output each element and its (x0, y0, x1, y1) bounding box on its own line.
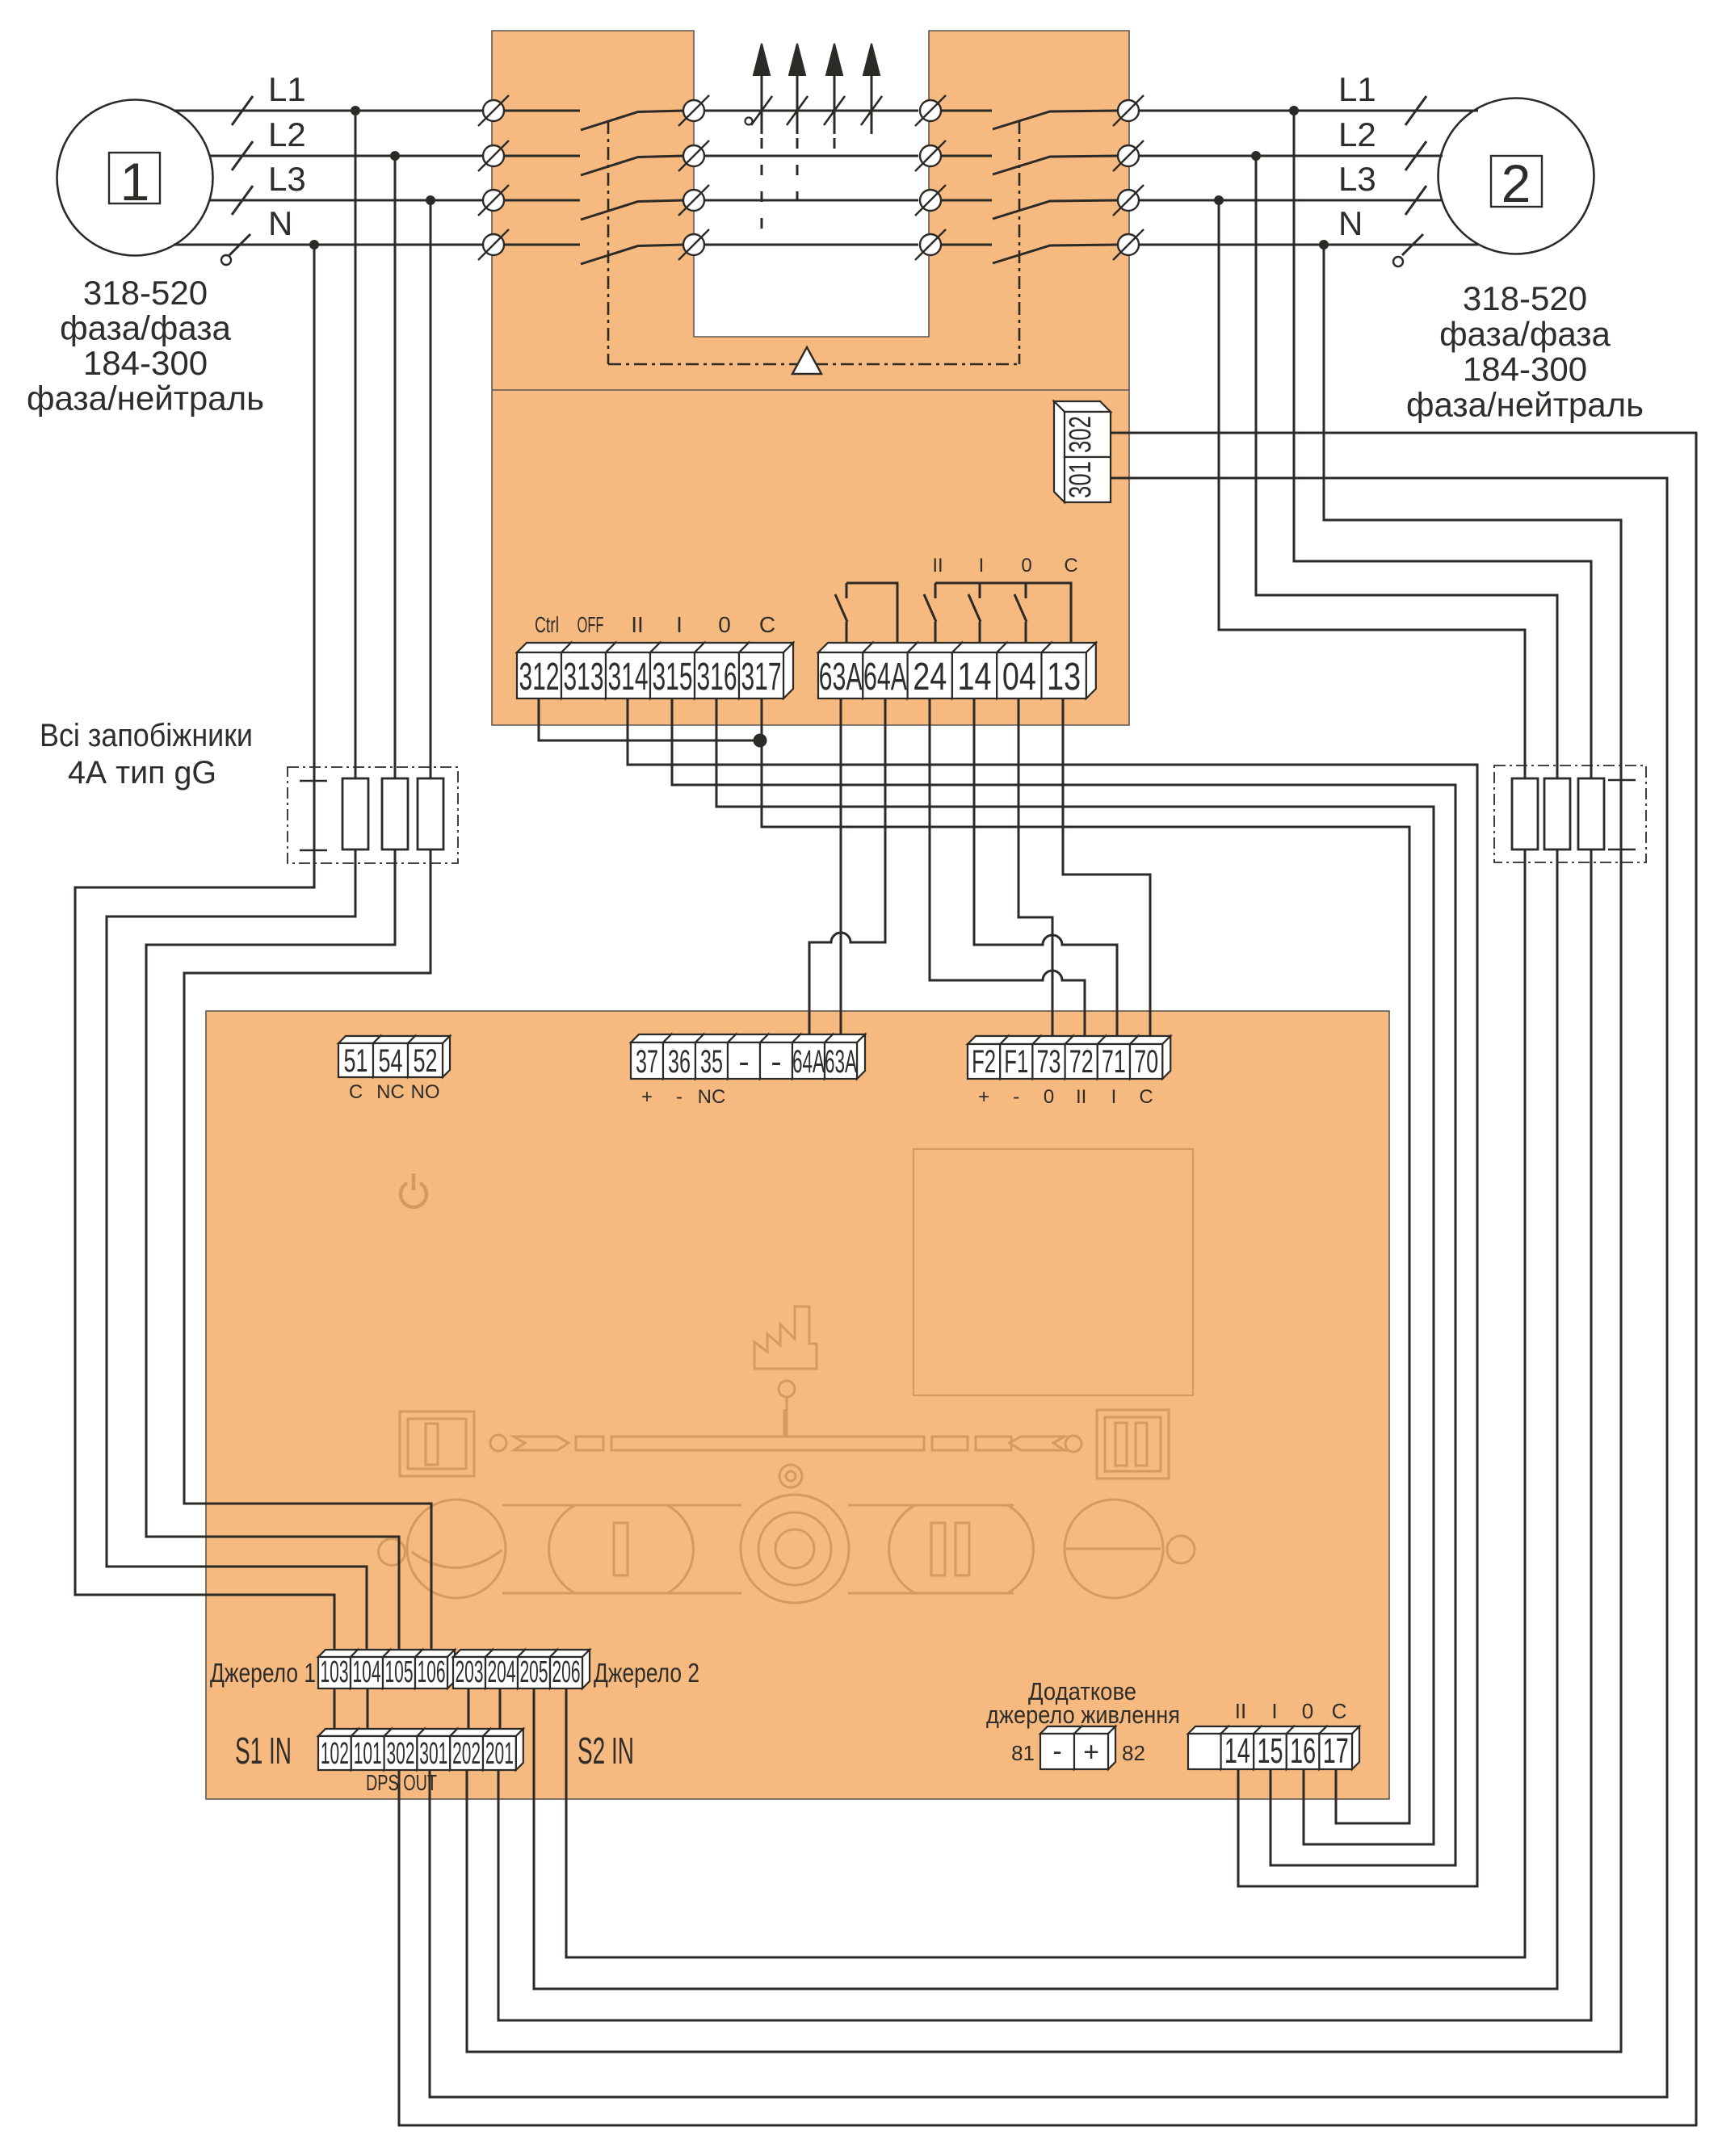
svg-text:204: 204 (488, 1655, 516, 1689)
svg-text:301: 301 (1064, 461, 1098, 498)
svg-text:NO: NO (411, 1081, 440, 1103)
svg-text:13: 13 (1047, 656, 1081, 698)
svg-text:4А тип gG: 4А тип gG (68, 755, 216, 791)
svg-text:206: 206 (552, 1655, 581, 1689)
svg-text:фаза/нейтраль: фаза/нейтраль (27, 380, 264, 417)
svg-text:318-520: 318-520 (1463, 279, 1587, 317)
svg-text:312: 312 (519, 656, 560, 698)
svg-text:DPS OUT: DPS OUT (366, 1770, 437, 1795)
svg-text:N: N (1338, 204, 1363, 242)
svg-text:54: 54 (379, 1043, 403, 1079)
svg-text:I: I (1271, 1699, 1277, 1723)
svg-text:17: 17 (1323, 1731, 1349, 1771)
svg-text:L1: L1 (268, 70, 306, 108)
svg-text:103: 103 (321, 1655, 349, 1689)
svg-text:+: + (641, 1086, 653, 1108)
svg-text:Ctrl: Ctrl (535, 612, 559, 637)
svg-text:184-300: 184-300 (83, 344, 208, 382)
svg-text:NC: NC (698, 1086, 726, 1108)
svg-text:II: II (1076, 1086, 1086, 1108)
svg-text:F2: F2 (972, 1044, 996, 1080)
svg-text:2: 2 (1501, 153, 1531, 213)
svg-text:205: 205 (520, 1655, 548, 1689)
svg-text:102: 102 (321, 1737, 349, 1771)
svg-text:Джерело 2: Джерело 2 (594, 1658, 699, 1688)
svg-text:14: 14 (958, 656, 992, 698)
svg-text:N: N (268, 204, 292, 242)
svg-text:35: 35 (700, 1044, 723, 1080)
svg-text:317: 317 (741, 656, 782, 698)
svg-text:L3: L3 (1338, 160, 1376, 198)
svg-text:64A: 64A (792, 1044, 825, 1080)
svg-text:C: C (1139, 1086, 1153, 1108)
svg-text:81: 81 (1011, 1741, 1035, 1765)
svg-text:+: + (1083, 1737, 1099, 1768)
svg-text:L3: L3 (268, 160, 306, 198)
svg-text:184-300: 184-300 (1463, 350, 1587, 388)
svg-text:F1: F1 (1004, 1044, 1028, 1080)
svg-text:L2: L2 (1338, 115, 1376, 153)
svg-text:313: 313 (564, 656, 604, 698)
svg-text:I: I (1111, 1086, 1117, 1108)
svg-text:L1: L1 (1338, 70, 1376, 108)
svg-text:S2 IN: S2 IN (577, 1730, 634, 1772)
svg-text:C: C (349, 1081, 363, 1103)
svg-text:-: - (738, 1044, 749, 1080)
svg-text:L2: L2 (268, 115, 306, 153)
svg-text:24: 24 (913, 656, 947, 698)
svg-text:63A: 63A (819, 656, 863, 698)
svg-text:52: 52 (414, 1043, 438, 1079)
svg-text:203: 203 (456, 1655, 484, 1689)
svg-text:14: 14 (1224, 1731, 1250, 1771)
svg-text:C: C (1332, 1699, 1347, 1723)
svg-text:0: 0 (1021, 555, 1031, 577)
svg-text:315: 315 (653, 656, 693, 698)
svg-text:-: - (1013, 1086, 1019, 1108)
svg-text:1: 1 (120, 152, 150, 212)
svg-text:202: 202 (452, 1737, 481, 1771)
svg-text:104: 104 (353, 1655, 381, 1689)
svg-text:105: 105 (385, 1655, 414, 1689)
svg-text:OFF: OFF (577, 612, 604, 637)
svg-text:101: 101 (354, 1737, 382, 1771)
svg-text:фаза/нейтраль: фаза/нейтраль (1406, 385, 1644, 423)
svg-text:S1 IN: S1 IN (235, 1730, 292, 1772)
svg-text:71: 71 (1102, 1044, 1126, 1080)
svg-text:II: II (1235, 1699, 1246, 1723)
svg-text:0: 0 (1302, 1699, 1313, 1723)
svg-text:314: 314 (608, 656, 649, 698)
svg-text:302: 302 (1064, 416, 1098, 453)
svg-text:16: 16 (1290, 1731, 1316, 1771)
svg-text:II: II (932, 555, 943, 577)
svg-text:II: II (631, 612, 644, 637)
svg-text:+: + (978, 1086, 989, 1108)
svg-text:36: 36 (668, 1044, 691, 1080)
svg-text:04: 04 (1002, 656, 1036, 698)
svg-text:63A: 63A (825, 1044, 857, 1080)
svg-text:302: 302 (387, 1737, 415, 1771)
svg-text:73: 73 (1037, 1044, 1061, 1080)
svg-text:15: 15 (1258, 1731, 1283, 1771)
svg-text:I: I (979, 555, 985, 577)
svg-text:джерело живлення: джерело живлення (986, 1701, 1180, 1729)
svg-text:фаза/фаза: фаза/фаза (60, 309, 231, 347)
svg-text:C: C (1064, 555, 1077, 577)
svg-text:70: 70 (1134, 1044, 1158, 1080)
svg-text:0: 0 (1044, 1086, 1054, 1108)
svg-text:Всі запобіжники: Всі запобіжники (40, 718, 253, 753)
svg-text:C: C (759, 612, 775, 637)
svg-text:фаза/фаза: фаза/фаза (1439, 315, 1611, 353)
svg-text:I: I (676, 612, 682, 637)
svg-text:-: - (771, 1044, 781, 1080)
svg-text:301: 301 (419, 1737, 447, 1771)
svg-text:106: 106 (418, 1655, 446, 1689)
svg-text:201: 201 (485, 1737, 514, 1771)
svg-text:64A: 64A (863, 656, 907, 698)
svg-text:-: - (1052, 1736, 1061, 1767)
svg-text:37: 37 (636, 1044, 658, 1080)
svg-text:-: - (676, 1086, 682, 1108)
svg-text:Джерело 1: Джерело 1 (210, 1658, 316, 1688)
svg-text:51: 51 (344, 1043, 368, 1079)
svg-text:316: 316 (697, 656, 737, 698)
svg-text:82: 82 (1122, 1741, 1145, 1765)
svg-text:318-520: 318-520 (83, 274, 208, 312)
svg-text:0: 0 (718, 612, 731, 637)
svg-text:NC: NC (376, 1081, 405, 1103)
svg-text:72: 72 (1069, 1044, 1094, 1080)
